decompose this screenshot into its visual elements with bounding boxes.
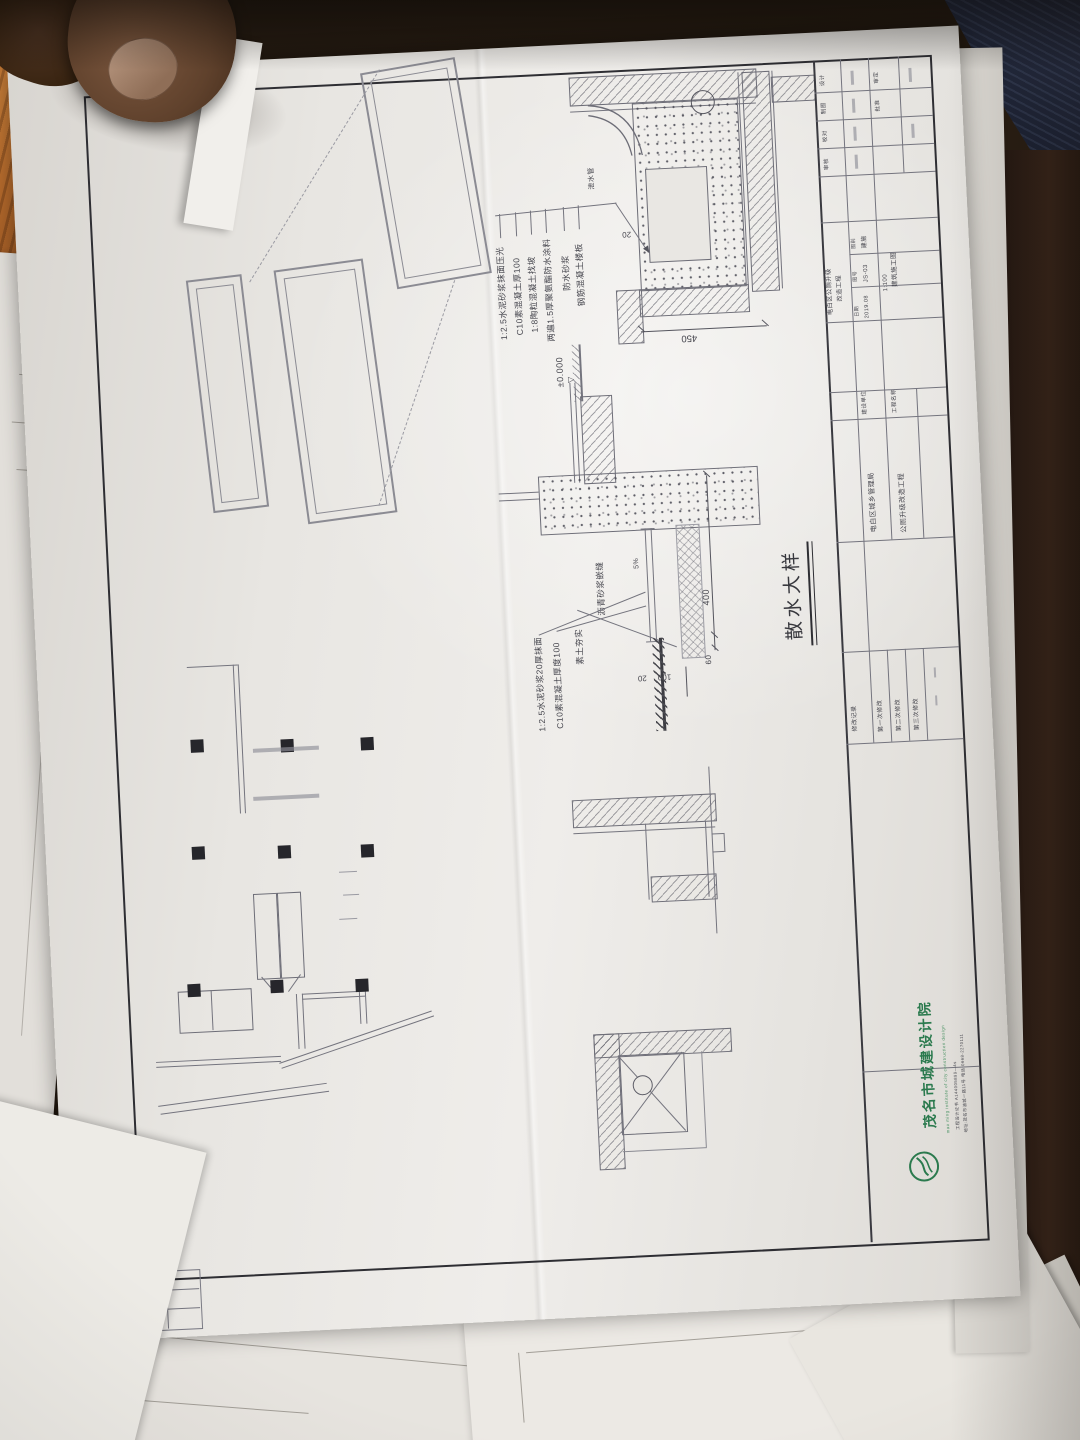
dim-text-60: 60	[705, 654, 713, 664]
plan-column	[361, 844, 375, 858]
gutter-bottom-hatch	[639, 284, 750, 317]
revision-header: 修改记录	[851, 705, 858, 731]
client-label: 建设单位	[862, 390, 869, 414]
field-label: 图别	[852, 238, 858, 249]
revision-smudge	[935, 695, 937, 705]
level-text: ±0.000	[555, 357, 565, 388]
plan-column	[187, 984, 201, 998]
dim-text-20: 20	[622, 230, 631, 238]
sign-label: 校对	[823, 130, 829, 142]
plan-column	[190, 739, 204, 753]
plan-stair	[277, 892, 305, 979]
scale-value: 1:100	[882, 274, 889, 292]
field-value: 2019.08	[864, 295, 871, 319]
detail-title: 散水大样	[782, 548, 805, 641]
gutter-cavity	[645, 166, 712, 263]
under-sheet-line	[518, 1353, 525, 1423]
gutter-beam-hatch	[771, 75, 816, 103]
project-label: 工程名称	[892, 389, 899, 413]
sign-label: 设计	[821, 74, 827, 86]
field-value: JS-03	[863, 264, 870, 282]
apron-label-soil: 素土夯实	[574, 629, 584, 665]
section-block-hatch	[651, 873, 718, 902]
plan-column	[355, 978, 369, 992]
sign-label: 审定	[875, 71, 881, 83]
institute-logo	[907, 1150, 941, 1184]
field-label: 日期	[855, 306, 861, 317]
gutter-wall-lower-hatch	[616, 289, 645, 344]
dim-text-450: 450	[681, 333, 697, 343]
sign-label: 制图	[822, 102, 828, 114]
revision-smudge	[934, 667, 936, 677]
photo-canvas: 450 20 泄水管 1:2.5水泥砂浆抹面压光 C10素混凝土厚100 1:8…	[0, 0, 1080, 1440]
plan-column	[278, 845, 292, 859]
dim-text-400: 400	[702, 589, 712, 606]
sign-label: 审核	[825, 158, 831, 170]
apron-wall-hatch	[580, 395, 616, 484]
gutter-elbow-pipe	[581, 86, 656, 157]
plan-column	[270, 980, 284, 994]
dim-text-20b: 20	[638, 674, 647, 682]
callout-label: 防水砂浆	[561, 255, 571, 291]
apron-slab-hatch	[538, 466, 761, 536]
field-value: 建施	[862, 235, 869, 248]
slope-text: 5%	[633, 558, 641, 569]
field-label: 图号	[853, 271, 859, 282]
sign-label: 批准	[876, 99, 882, 111]
plan-column	[192, 846, 206, 860]
plan-column	[360, 737, 374, 751]
project-full-line2: 改造工程	[836, 275, 844, 302]
pipe-label: 泄水管	[588, 167, 596, 190]
